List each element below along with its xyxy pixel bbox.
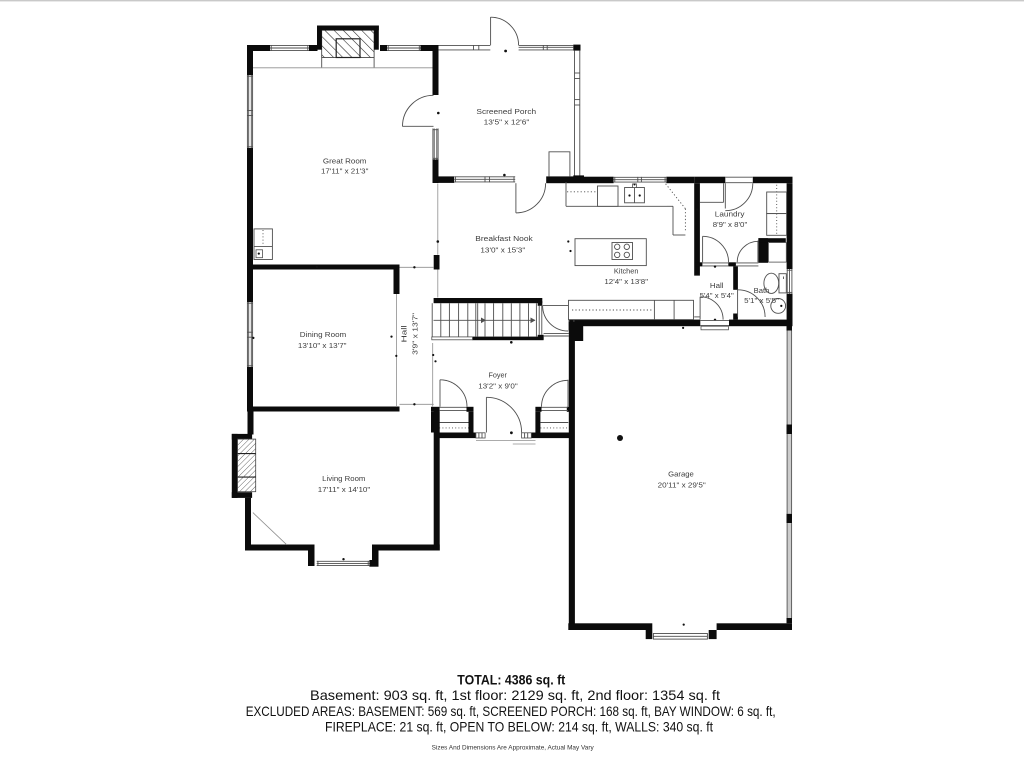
svg-text:Living Room: Living Room [322, 474, 365, 483]
svg-text:EXCLUDED AREAS: BASEMENT: 569: EXCLUDED AREAS: BASEMENT: 569 sq. ft, SC… [246, 704, 776, 719]
svg-text:5'4" x 5'4": 5'4" x 5'4" [700, 291, 735, 300]
svg-text:Screened Porch: Screened Porch [476, 107, 536, 116]
svg-text:Sizes And Dimensions Are Appro: Sizes And Dimensions Are Approximate, Ac… [432, 745, 595, 752]
svg-text:17'11" x 21'3": 17'11" x 21'3" [321, 167, 369, 176]
svg-text:Breakfast Nook: Breakfast Nook [475, 234, 533, 243]
svg-text:13'10" x 13'7": 13'10" x 13'7" [298, 341, 347, 350]
svg-text:Garage: Garage [668, 469, 694, 478]
svg-text:20'11" x 29'5": 20'11" x 29'5" [658, 480, 707, 489]
svg-text:17'11" x 14'10": 17'11" x 14'10" [318, 485, 371, 494]
svg-text:Bath: Bath [754, 286, 770, 295]
svg-text:12'4" x 13'8": 12'4" x 13'8" [604, 277, 648, 286]
svg-text:Basement: 903 sq. ft, 1st floo: Basement: 903 sq. ft, 1st floor: 2129 sq… [310, 688, 720, 703]
svg-text:Laundry: Laundry [715, 210, 745, 219]
svg-text:5'1" x 5'5": 5'1" x 5'5" [744, 296, 779, 305]
svg-text:FIREPLACE: 21 sq. ft, OPEN TO: FIREPLACE: 21 sq. ft, OPEN TO BELOW: 214… [325, 720, 713, 735]
svg-text:Kitchen: Kitchen [614, 267, 639, 276]
svg-text:Foyer: Foyer [488, 371, 507, 380]
svg-text:8'9" x 8'0": 8'9" x 8'0" [713, 220, 748, 229]
svg-text:Dining Room: Dining Room [300, 330, 347, 339]
svg-text:Hall: Hall [400, 325, 409, 342]
svg-text:Great Room: Great Room [323, 156, 367, 165]
svg-text:TOTAL: 4386 sq. ft: TOTAL: 4386 sq. ft [457, 672, 565, 688]
svg-text:3'9" x 13'7": 3'9" x 13'7" [411, 313, 420, 355]
svg-text:13'5" x 12'6": 13'5" x 12'6" [484, 117, 530, 126]
svg-text:13'2" x 9'0": 13'2" x 9'0" [478, 381, 518, 390]
svg-text:Hall: Hall [710, 281, 724, 290]
svg-text:13'0" x 15'3": 13'0" x 15'3" [480, 245, 525, 254]
